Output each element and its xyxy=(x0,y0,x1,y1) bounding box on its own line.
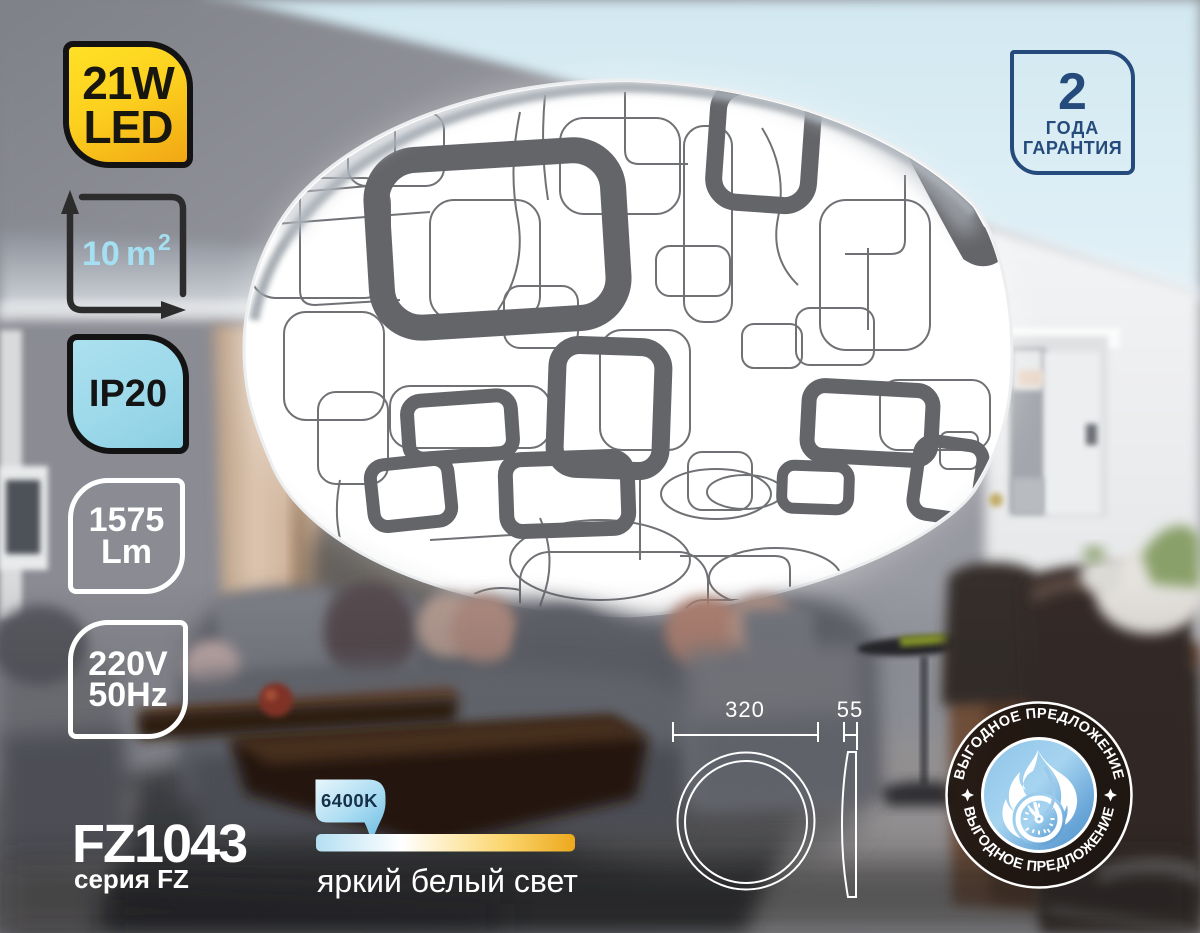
svg-text:2: 2 xyxy=(158,229,171,255)
svg-text:6400K: 6400K xyxy=(321,790,378,811)
svg-text:55: 55 xyxy=(837,697,863,722)
svg-text:m: m xyxy=(126,235,156,273)
svg-text:10: 10 xyxy=(82,235,120,273)
svg-text:320: 320 xyxy=(725,697,765,722)
